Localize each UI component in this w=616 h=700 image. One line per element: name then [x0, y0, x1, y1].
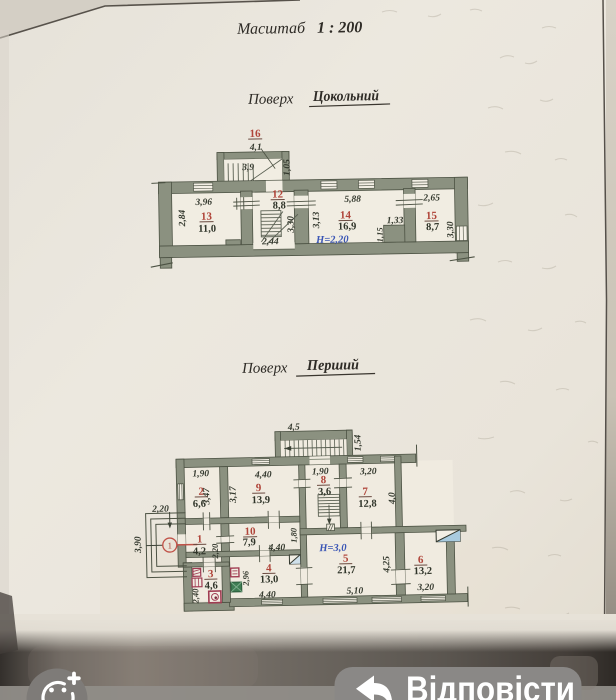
svg-text:3,30: 3,30 [286, 216, 296, 234]
svg-text:3,13: 3,13 [312, 211, 322, 229]
svg-text:Відповісти: Відповісти [406, 669, 575, 700]
svg-text:4: 4 [266, 562, 272, 574]
svg-text:3,17: 3,17 [229, 485, 239, 504]
svg-text:2: 2 [198, 486, 204, 498]
svg-text:2,44: 2,44 [261, 237, 279, 247]
svg-text:Н=3,0: Н=3,0 [318, 543, 347, 555]
svg-text:11,0: 11,0 [198, 224, 216, 235]
svg-text:3,90: 3,90 [134, 536, 144, 554]
svg-text:4,6: 4,6 [205, 581, 218, 592]
svg-text:1: 1 [167, 541, 172, 551]
svg-text:Поверх: Поверх [247, 91, 294, 108]
svg-text:4,2: 4,2 [193, 546, 206, 557]
svg-text:21,7: 21,7 [337, 565, 356, 576]
svg-text:1,90: 1,90 [192, 469, 209, 479]
svg-text:3,20: 3,20 [359, 467, 377, 477]
svg-text:8: 8 [321, 474, 327, 486]
svg-text:12,8: 12,8 [358, 499, 377, 510]
svg-text:3: 3 [208, 568, 214, 580]
svg-text:4,1: 4,1 [249, 143, 262, 153]
svg-text:1,33: 1,33 [387, 216, 404, 226]
svg-text:7: 7 [362, 486, 368, 498]
svg-text:12: 12 [272, 188, 284, 200]
svg-text:15: 15 [426, 210, 438, 222]
svg-text:4,5: 4,5 [287, 423, 300, 433]
svg-text:1,15: 1,15 [375, 227, 385, 243]
svg-text:3,9: 3,9 [241, 163, 254, 173]
svg-text:16: 16 [249, 128, 261, 140]
svg-text:3,20: 3,20 [416, 583, 434, 593]
svg-text:2,96: 2,96 [240, 570, 250, 587]
svg-text:1,05: 1,05 [283, 159, 293, 176]
svg-text:13,0: 13,0 [260, 574, 279, 585]
svg-text:8,8: 8,8 [273, 200, 286, 211]
svg-text:6,6: 6,6 [193, 499, 206, 510]
svg-text:2,40: 2,40 [190, 588, 200, 605]
svg-text:4,25: 4,25 [382, 556, 392, 574]
svg-text:1 : 200: 1 : 200 [317, 19, 363, 37]
svg-text:5,88: 5,88 [344, 195, 361, 205]
svg-text:16,9: 16,9 [338, 221, 357, 232]
svg-text:4,40: 4,40 [254, 470, 272, 480]
svg-text:4,40: 4,40 [258, 590, 276, 600]
svg-text:9: 9 [256, 482, 262, 494]
svg-text:2,20: 2,20 [210, 543, 220, 560]
svg-text:8,7: 8,7 [426, 222, 439, 233]
svg-text:Поверх: Поверх [241, 360, 288, 377]
svg-text:6: 6 [418, 554, 424, 566]
svg-text:1,80: 1,80 [288, 527, 298, 543]
svg-text:5: 5 [343, 553, 349, 565]
svg-text:4,40: 4,40 [267, 543, 285, 553]
svg-text:13,9: 13,9 [252, 495, 271, 506]
svg-text:14: 14 [340, 209, 352, 221]
svg-text:5,10: 5,10 [346, 586, 363, 596]
svg-text:Перший: Перший [306, 357, 359, 374]
svg-text:1: 1 [197, 533, 203, 545]
svg-text:4,0: 4,0 [388, 492, 398, 505]
svg-text:Цокольний: Цокольний [312, 88, 379, 105]
svg-text:10: 10 [244, 526, 256, 538]
svg-text:3,6: 3,6 [318, 487, 331, 498]
svg-text:13: 13 [201, 211, 213, 223]
svg-text:2,84: 2,84 [178, 210, 188, 228]
svg-text:3,30: 3,30 [446, 221, 456, 239]
svg-text:Н=2,20: Н=2,20 [315, 234, 349, 246]
svg-text:2,20: 2,20 [151, 505, 169, 515]
svg-text:1,54: 1,54 [353, 434, 363, 451]
svg-text:Масштаб: Масштаб [236, 20, 306, 38]
svg-text:7,9: 7,9 [243, 537, 256, 548]
svg-text:2,65: 2,65 [422, 193, 440, 203]
svg-text:3,96: 3,96 [194, 198, 212, 208]
svg-text:13,2: 13,2 [414, 566, 433, 577]
